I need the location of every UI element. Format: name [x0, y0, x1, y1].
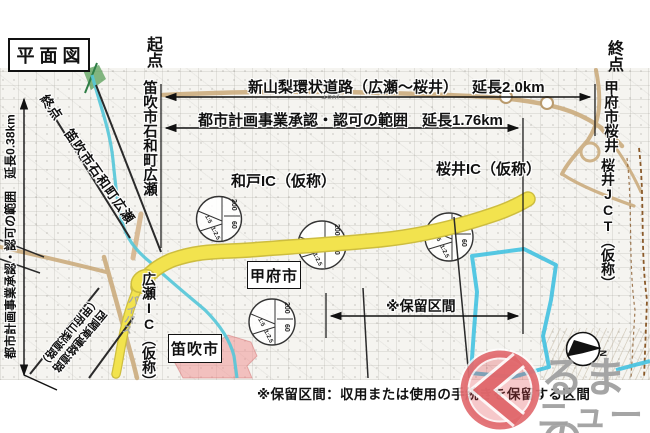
kofu-city-box: 甲府市: [247, 261, 301, 289]
svg-text:60: 60: [230, 221, 237, 229]
svg-text:60: 60: [283, 324, 290, 332]
svg-text:200: 200: [283, 302, 290, 314]
figure-title-box: 平面図: [8, 38, 90, 72]
hirose-ic-label: 広瀬IC（仮称）: [139, 272, 159, 388]
left-approval-dimension: 都市計画事業承認・認可の範囲 延長0.38km: [2, 92, 19, 382]
hirose-ic-post: （仮称）: [141, 332, 157, 388]
sakurai-jct-post: （仮称）: [600, 234, 616, 290]
sakurai-ic-label: 桜井IC（仮称）: [436, 158, 541, 179]
start-place-label: 笛吹市石和町広瀬: [139, 80, 160, 196]
road-extent-dimension: 新山梨環状道路（広瀬～桜井）延長2.0km: [248, 76, 545, 97]
road-length: 延長2.0km: [472, 79, 545, 96]
hold-section-label: ※保留区間: [386, 296, 456, 316]
road-name: 新山梨環状道路（広瀬～桜井）: [248, 79, 458, 96]
sakurai-jct-label: 桜井JCT（仮称）: [598, 158, 618, 290]
sakurai-jct-latin: JCT: [600, 186, 616, 234]
hirose-ic-latin: IC: [141, 300, 157, 332]
svg-text:60: 60: [460, 239, 467, 247]
watermark-text-line2: ニュース: [537, 388, 650, 433]
approval-extent-dimension: 都市計画事業承認・認可の範囲延長1.76km: [198, 109, 503, 130]
svg-text:200: 200: [333, 224, 340, 236]
approval-name: 都市計画事業承認・認可の範囲: [198, 112, 408, 129]
plan-map-figure: 200 60 1:5 1:2.5 200 60 1:5 1:2.5: [0, 0, 650, 433]
wado-ic-label: 和戸IC（仮称）: [231, 170, 336, 191]
end-point-label: 終点: [601, 40, 625, 72]
zoning-circle: 200 60 1:5 1:2.5: [197, 197, 242, 242]
fuefuki-city-box: 笛吹市: [168, 334, 222, 363]
end-place-label: 甲府市桜井: [600, 80, 621, 153]
zoning-circle: 200 60 1:5 1:2.5: [249, 299, 295, 345]
zoning-circles: 200 60 1:5 1:2.5 200 60 1:5 1:2.5: [197, 197, 474, 346]
hirose-ic-pre: 広瀬: [141, 272, 157, 300]
sakurai-jct-pre: 桜井: [600, 158, 616, 186]
svg-text:200: 200: [230, 199, 237, 211]
start-point-label: 起点: [140, 36, 164, 68]
approval-length: 延長1.76km: [422, 112, 503, 129]
